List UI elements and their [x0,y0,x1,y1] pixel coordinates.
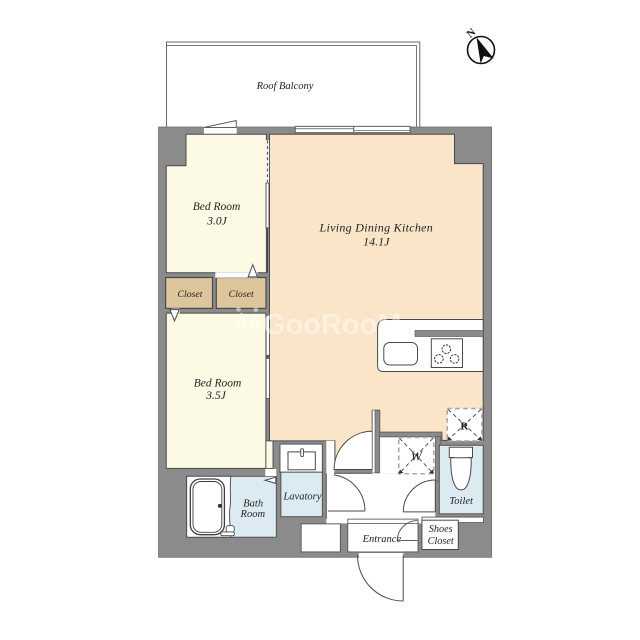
svg-text:Toilet: Toilet [449,496,474,507]
svg-text:Roof Balcony: Roof Balcony [256,81,314,92]
svg-text:GooRooM: GooRooM [263,309,402,341]
svg-text:3.0J: 3.0J [206,216,227,228]
svg-text:Closet: Closet [229,289,254,300]
svg-text:Entrance: Entrance [362,534,402,545]
svg-text:3.5J: 3.5J [205,390,226,402]
svg-text:Bath: Bath [243,499,263,510]
svg-text:Bed Room: Bed Room [193,201,241,213]
svg-text:Room: Room [240,509,266,520]
svg-text:Shoes: Shoes [429,524,453,535]
svg-text:Closet: Closet [428,536,455,547]
svg-text:W: W [411,449,424,464]
svg-text:Living Dining Kitchen: Living Dining Kitchen [318,221,433,235]
svg-text:Bed Room: Bed Room [194,377,242,389]
svg-text:R: R [460,421,469,433]
svg-text:Closet: Closet [177,289,202,300]
svg-text:Lavatory: Lavatory [282,492,321,503]
svg-text:14.1J: 14.1J [363,235,390,249]
